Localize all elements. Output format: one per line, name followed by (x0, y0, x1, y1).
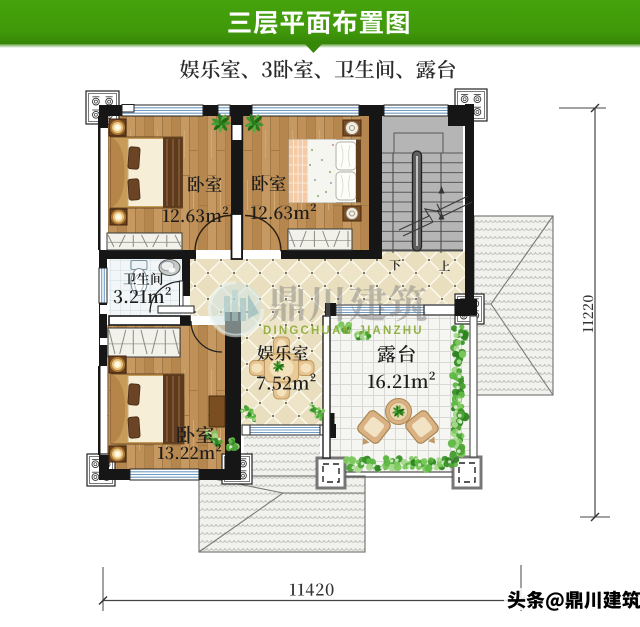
svg-text:DINGCHUAN JIANZHU: DINGCHUAN JIANZHU (263, 325, 424, 337)
